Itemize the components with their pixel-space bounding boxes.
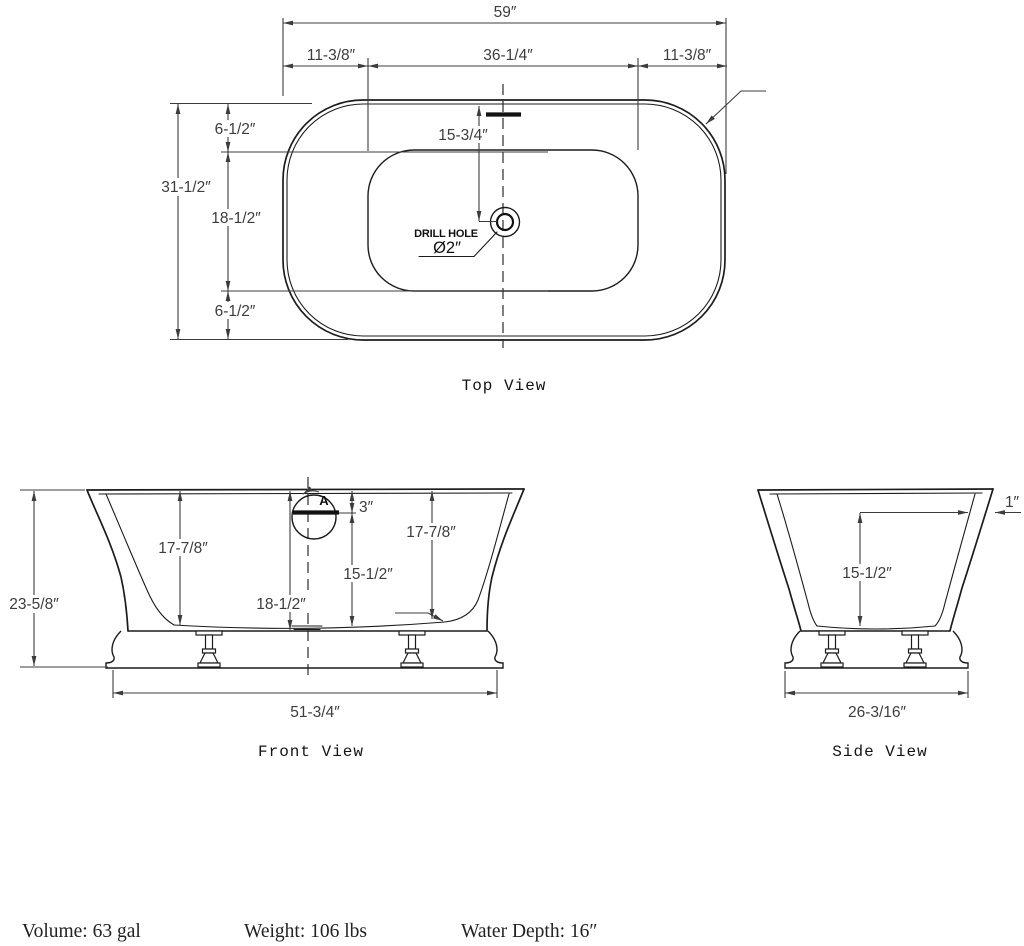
rim-leader-line (706, 91, 766, 124)
left-wall-outline (87, 490, 128, 631)
interior-bottom (817, 626, 935, 629)
footer-specs: Volume: 63 gal Weight: 106 lbs Water Dep… (22, 921, 598, 942)
dim-label-rim-to-overflow: 3″ (359, 499, 374, 516)
dim-label-interior-depth: 15-1/2″ (842, 565, 892, 582)
rim-top-edge (87, 489, 524, 490)
front-view: A 23-5/8″ 17-7/8″ 18-1/2″ 3″ 15-1/2″ 17-… (1, 477, 524, 761)
left-wall-outline (758, 490, 801, 631)
dim-label-overflow-to-bottom: 15-1/2″ (343, 566, 393, 583)
tub-outer-rim-inner-contour (287, 104, 721, 336)
dim-label-base-length: 51-3/4″ (290, 704, 340, 721)
rim-inner-edge (99, 493, 512, 494)
detail-a-label: A (319, 493, 329, 508)
side-view: 1″ 15-1/2″ 26-3/16″ Side View (758, 489, 1021, 761)
adjustable-foot (902, 631, 928, 667)
dim-label-deck-right: 11-3/8″ (663, 47, 712, 64)
left-inner-wall (777, 494, 817, 626)
bottom-leader-line (395, 613, 443, 621)
volume-spec: Volume: 63 gal (22, 921, 141, 942)
interior-bottom (174, 622, 445, 628)
side-view-caption: Side View (832, 743, 927, 761)
tub-outer-rim-outline (283, 100, 725, 340)
rim-inner-edge (770, 493, 982, 494)
adjustable-foot (399, 631, 425, 667)
dim-label-deck-left: 11-3/8″ (307, 47, 356, 64)
drill-hole-inner-circle (497, 214, 513, 230)
dim-label-depth-left: 17-7/8″ (158, 540, 208, 557)
right-wall-outline (487, 489, 524, 631)
dim-label-base-width: 26-3/16″ (848, 704, 907, 721)
plinth-base (106, 631, 503, 668)
right-inner-wall (935, 494, 975, 626)
dim-label-depth-right: 17-7/8″ (406, 524, 456, 541)
dim-label-59: 59″ (494, 4, 517, 21)
right-inner-wall (445, 494, 509, 622)
bathtub-spec-drawing: 59″ 11-3/8″ 36-1/4″ 11-3/8″ 31-1/2″ 6-1/… (0, 0, 1024, 946)
dim-label-deck-top: 6-1/2″ (215, 121, 256, 138)
adjustable-foot (196, 631, 222, 667)
dim-label-interior-depth-total: 18-1/2″ (256, 596, 306, 613)
technical-drawing-canvas: 59″ 11-3/8″ 36-1/4″ 11-3/8″ 31-1/2″ 6-1/… (0, 0, 1024, 946)
weight-spec: Weight: 106 lbs (244, 921, 367, 942)
top-view: 59″ 11-3/8″ 36-1/4″ 11-3/8″ 31-1/2″ 6-1/… (150, 4, 766, 395)
dim-label-overall-height: 23-5/8″ (9, 596, 59, 613)
front-view-caption: Front View (258, 743, 364, 761)
water-depth-spec: Water Depth: 16″ (461, 921, 598, 942)
plinth-base (785, 631, 968, 668)
dim-label-basin-length: 36-1/4″ (483, 47, 533, 64)
detail-circle-a (292, 495, 336, 539)
drill-hole-size-label: Ø2″ (433, 239, 461, 257)
dim-label-drain-offset: 15-3/4″ (438, 127, 488, 144)
dim-label-rim-thickness: 1″ (1005, 494, 1020, 511)
dim-label-basin-width: 18-1/2″ (211, 210, 261, 227)
top-view-caption: Top View (462, 377, 547, 395)
dim-label-deck-bottom: 6-1/2″ (215, 303, 256, 320)
rim-top-edge (758, 489, 993, 490)
dim-label-overall-width: 31-1/2″ (161, 179, 211, 196)
adjustable-foot (819, 631, 845, 667)
